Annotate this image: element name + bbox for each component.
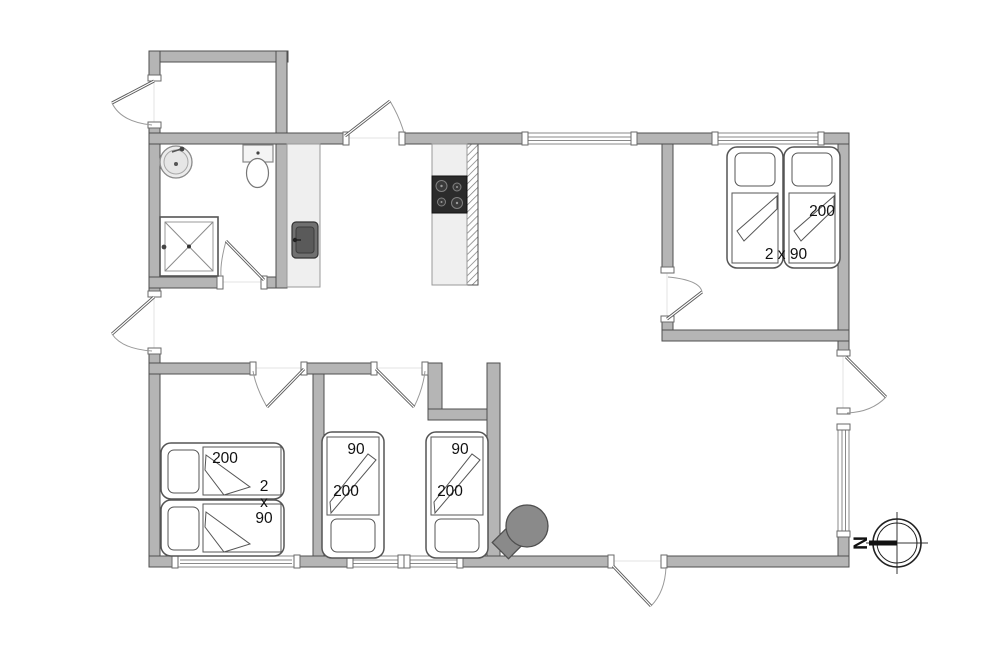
small-room-west-width-label: 90 <box>347 441 365 458</box>
wall-bathroom-right <box>276 144 287 288</box>
wall-entry-right <box>276 51 287 144</box>
wall-west-upper <box>149 144 160 295</box>
kitchen-counter-east <box>432 144 467 285</box>
door-twin-room <box>371 362 428 407</box>
hob-icon <box>432 176 467 213</box>
wall-north-4 <box>824 133 849 144</box>
wall-south-4 <box>149 556 172 567</box>
bedroom-right-length-label: 200 <box>809 203 835 220</box>
bathroom <box>160 145 273 276</box>
wall-twinroom-right <box>487 363 500 556</box>
kitchen-sink-icon <box>292 222 318 258</box>
wall-south-2 <box>463 556 610 567</box>
small-room-east-length-label: 200 <box>437 483 463 500</box>
wall-bedroom-right-upper <box>662 144 673 267</box>
wall-wing-top-2 <box>307 363 373 374</box>
door-east <box>837 350 886 414</box>
bedroom-left-length-label: 200 <box>212 450 238 467</box>
shower-icon <box>160 217 218 276</box>
wood-stove-icon <box>492 505 548 559</box>
bedroom-left-count-label: 2 <box>260 478 269 495</box>
window-south-west <box>172 555 300 568</box>
toilet-icon <box>243 145 273 188</box>
wall-kitchen-hatched <box>467 144 478 285</box>
bedroom-right-size-label: 2 x 90 <box>765 246 808 263</box>
wall-north-1 <box>149 133 343 144</box>
floor-plan-page: N 200 2 x 90 200 2 x 90 90 200 90 200 <box>0 0 1000 667</box>
wall-wing-top-1 <box>149 363 252 374</box>
wall-bedroom-right-bottom <box>662 330 849 341</box>
small-room-west-length-label: 200 <box>333 483 359 500</box>
washbasin-icon <box>160 146 192 178</box>
compass-icon: N <box>849 512 929 574</box>
compass-north-label: N <box>849 536 870 550</box>
wall-south-1 <box>667 556 849 567</box>
wall-north-3 <box>637 133 712 144</box>
window-north-east <box>712 132 824 145</box>
bedroom-left-width-label: 90 <box>255 510 273 527</box>
door-bedroom-left <box>250 362 307 407</box>
kitchen-counter-west <box>287 144 320 287</box>
kitchen <box>287 144 467 287</box>
door-south-terrace <box>608 555 667 606</box>
bedroom-left-times-label: x <box>260 494 268 511</box>
floor-plan-svg: N 200 2 x 90 200 2 x 90 90 200 90 200 <box>0 0 1000 667</box>
wall-bathroom-bottom <box>149 277 220 288</box>
window-east <box>837 424 850 537</box>
wall-north-2 <box>405 133 522 144</box>
window-north-west <box>522 132 637 145</box>
wall-west-lower <box>149 352 160 556</box>
small-room-east-width-label: 90 <box>451 441 469 458</box>
wall-entry-top <box>149 51 288 62</box>
